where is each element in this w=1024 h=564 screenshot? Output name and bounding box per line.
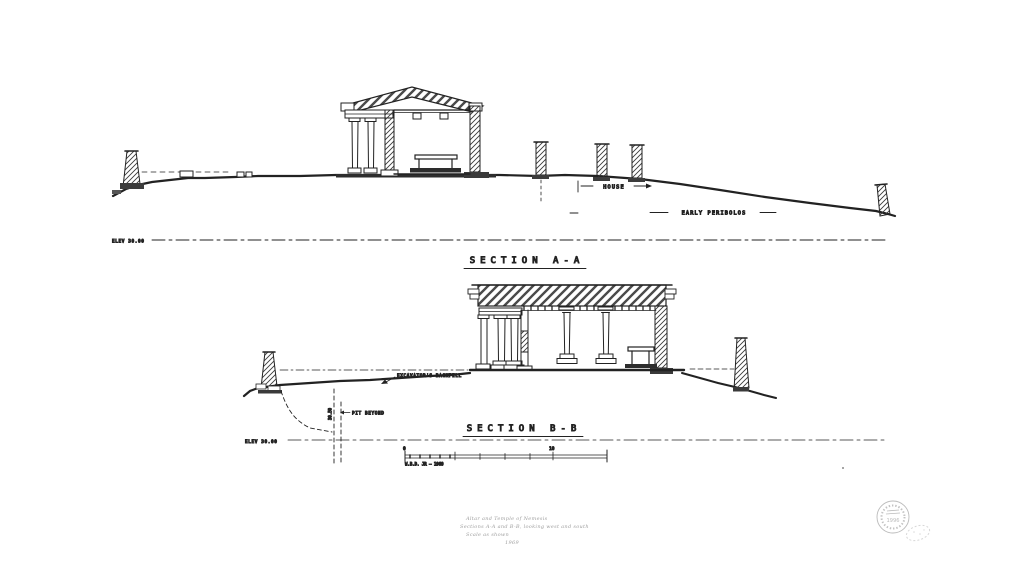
drawing-sheet: HOUSE EARLY PERIBOLOS ELEV 30.00 SECTION…	[0, 0, 1024, 564]
stray-dot	[842, 467, 844, 469]
section-b-drawing: EXCAVATOR'S BACKFILL 30.50 PIT BEYOND EL…	[244, 285, 888, 467]
wall-stub-left-a	[112, 151, 144, 194]
rear-wall-b	[655, 306, 667, 368]
cella-wall-a	[385, 110, 394, 172]
scale-start-label: 0	[403, 446, 406, 452]
ground-line-b-right	[682, 373, 776, 398]
scale-mid-label: 10	[549, 446, 555, 452]
stamp-year: 1996	[886, 518, 899, 524]
caption-line-1: Altar and Temple of Nemesis	[465, 516, 548, 522]
scale-bar	[405, 450, 607, 462]
elev-label-a: ELEV 30.00	[112, 239, 144, 245]
porch-columns-a	[348, 118, 377, 173]
ground-line-a	[113, 175, 895, 216]
section-a-title: SECTION A-A	[470, 256, 585, 266]
wall-pillar-right-b	[733, 338, 749, 392]
pit-arrow	[340, 411, 350, 415]
caption-line-3: Scale as shown	[466, 532, 509, 538]
caption-line-4: 1969	[505, 540, 519, 546]
scale-credit: W.B.D. JR — 1969	[405, 462, 444, 467]
oval-stamp	[904, 523, 931, 544]
interior-columns-b	[557, 307, 616, 364]
house-label: HOUSE	[603, 185, 625, 191]
pit-label: PIT BEYOND	[352, 411, 384, 417]
peribolos-label: EARLY PERIBOLOS	[682, 211, 747, 217]
section-drawing-canvas: HOUSE EARLY PERIBOLOS ELEV 30.00 SECTION…	[0, 0, 1024, 564]
caption-line-2: Sections A-A and B-B, looking west and s…	[460, 524, 589, 530]
pencil-caption: Altar and Temple of Nemesis Sections A-A…	[460, 516, 589, 546]
table-b	[625, 347, 657, 368]
porch-columns-b	[476, 308, 524, 370]
elev-label-b: ELEV 30.00	[245, 439, 277, 445]
round-stamp: 1996	[877, 501, 909, 533]
wall-pillar-left-b	[256, 352, 282, 394]
rear-wall-a	[470, 106, 480, 172]
section-a-drawing: HOUSE EARLY PERIBOLOS ELEV 30.00 SECTION…	[112, 87, 895, 269]
temple-section-a	[341, 87, 489, 178]
section-b-title: SECTION B-B	[467, 424, 582, 434]
altar-table-a	[410, 155, 461, 173]
backfill-label: EXCAVATOR'S BACKFILL	[397, 373, 462, 379]
roof-hatch	[342, 87, 483, 112]
pit-elev-label: 30.50	[328, 407, 333, 420]
pit-outline	[281, 391, 332, 432]
